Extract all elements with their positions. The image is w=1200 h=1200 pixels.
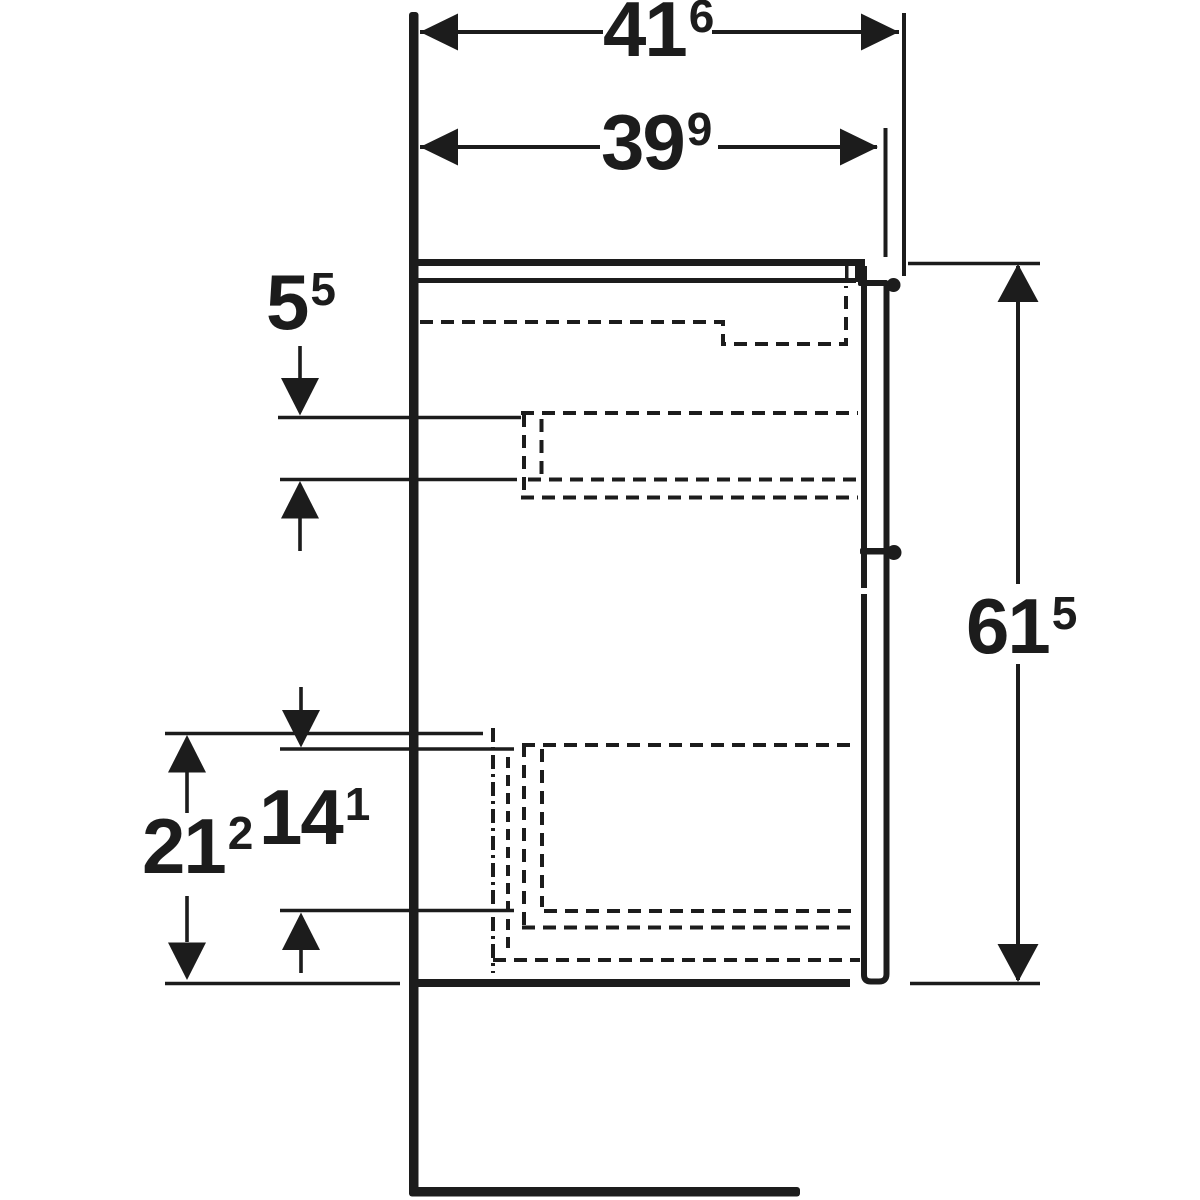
- drawer-front-panel: [864, 266, 887, 982]
- floor-line: [409, 1187, 800, 1197]
- top-recess-outline: [420, 286, 846, 344]
- dimension-value-superscript: 9: [687, 106, 713, 152]
- arrow-tail-front-gap-top: [298, 346, 302, 379]
- drawer-front-seam-gap: [860, 588, 868, 594]
- dimension-value-superscript: 1: [345, 781, 371, 827]
- dimension-label-width-cabinet: 39 9: [601, 103, 712, 181]
- cabinet-body: [413, 259, 887, 987]
- room-lines: [409, 12, 800, 1197]
- dimension-value: 21: [142, 807, 225, 885]
- wall-line: [409, 12, 419, 1196]
- dimension-label-bottom-drawer-inner: 14 1: [259, 778, 370, 856]
- dimension-value-superscript: 5: [1052, 590, 1078, 636]
- arrow-tail-front-gap-bottom: [298, 518, 302, 551]
- dimension-value: 61: [966, 587, 1049, 665]
- arrow-width-cabinet-left: [420, 129, 458, 166]
- dimension-label-bottom-section: 21 2: [142, 807, 253, 885]
- arrow-front-gap-down: [281, 378, 319, 416]
- arrow-width-total-left: [420, 14, 458, 51]
- technical-drawing-canvas: 41 6 39 9 61 5 5 5 21 2 14 1: [0, 0, 1200, 1200]
- arrow-tail-bottom-section-bottom: [185, 896, 189, 942]
- dimension-value-superscript: 5: [310, 266, 336, 312]
- dimension-label-front-top-gap: 5 5: [266, 263, 336, 341]
- arrow-bottom-section-down: [168, 943, 206, 981]
- dimension-value: 41: [603, 0, 686, 68]
- arrow-width-cabinet-right: [840, 129, 878, 166]
- cabinet-top-panel: [413, 259, 863, 266]
- dimension-label-height-total: 61 5: [966, 587, 1077, 665]
- arrow-tail-drawer-inner-bottom: [299, 950, 303, 973]
- cabinet-bottom-panel: [413, 979, 850, 987]
- arrow-drawer-inner-down: [282, 710, 320, 748]
- cabinet-top-underside: [418, 278, 856, 283]
- dimension-value: 14: [259, 778, 342, 856]
- dimension-value: 39: [601, 103, 684, 181]
- arrow-width-total-right: [861, 14, 899, 51]
- cabinet-top-seam: [845, 266, 849, 279]
- arrow-front-gap-up: [281, 481, 319, 519]
- dimension-value-superscript: 2: [228, 810, 254, 856]
- arrow-height-bottom: [998, 944, 1039, 982]
- dimension-label-width-total: 41 6: [603, 0, 714, 68]
- arrow-bottom-section-up: [168, 735, 206, 773]
- dimension-value: 5: [266, 263, 307, 341]
- dimension-value-superscript: 6: [689, 0, 715, 39]
- arrow-drawer-inner-up: [282, 913, 320, 951]
- dashed-internal-lines: [420, 286, 860, 973]
- arrow-height-top: [998, 264, 1039, 302]
- arrow-tail-drawer-inner-top: [299, 687, 303, 711]
